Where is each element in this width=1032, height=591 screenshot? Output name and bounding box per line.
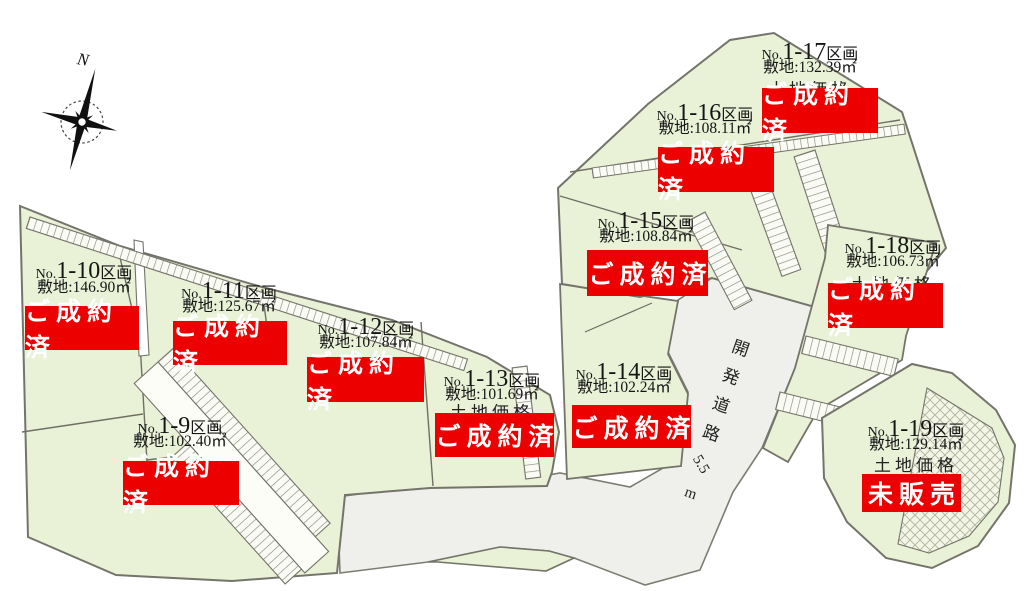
plot-1-13-area: 敷地:101.69㎡: [445, 387, 538, 403]
compass-rose: [29, 58, 130, 179]
plot-1-14-area: 敷地:102.24㎡: [577, 380, 670, 396]
land-plot-map: N 開発道路5.5m No.1-9区画敷地:102.40㎡ご成約済No.1-10…: [0, 0, 1032, 591]
plot-1-19-status-text: 未販売: [868, 475, 961, 511]
plot-1-17-status-banner: ご成約済: [762, 88, 878, 133]
plot-1-17-status-text: ご成約済: [762, 75, 884, 147]
plot-1-13-price-label: 土地価格: [450, 404, 534, 413]
plot-1-12-status-banner: ご成約済: [307, 357, 424, 402]
plot-1-15-area: 敷地:108.84㎡: [599, 229, 692, 245]
plot-1-9-status-banner: ご成約済: [123, 461, 239, 505]
plot-1-17-area: 敷地:132.39㎡: [763, 60, 856, 76]
plot-1-11-status-text: ご成約済: [173, 307, 293, 379]
plot-1-11-status-banner: ご成約済: [173, 321, 287, 365]
plot-1-9-status-text: ご成約済: [123, 447, 245, 519]
plot-1-10-status-text: ご成約済: [25, 292, 145, 364]
plot-1-18-status-banner: ご成約済: [828, 283, 943, 328]
plot-1-16-status-banner: ご成約済: [658, 147, 774, 192]
plot-1-15-status-text: ご成約済: [588, 255, 712, 291]
plot-1-15-status-banner: ご成約済: [587, 250, 708, 296]
plot-1-10-status-banner: ご成約済: [25, 306, 139, 350]
plot-1-12-status-text: ご成約済: [307, 344, 430, 416]
plot-1-19-area: 敷地:129.14㎡: [869, 437, 962, 453]
plot-1-13-status-banner: ご成約済: [435, 413, 554, 457]
plot-1-13-status-text: ご成約済: [435, 417, 559, 453]
plot-1-14-status-banner: ご成約済: [572, 405, 691, 448]
plot-1-14-status-text: ご成約済: [572, 409, 696, 445]
plot-1-18-area: 敷地:106.73㎡: [846, 254, 939, 270]
plot-1-19-price-label: 土地価格: [874, 457, 958, 473]
plot-1-18-status-text: ご成約済: [828, 270, 949, 342]
plot-1-19-status-banner: 未販売: [862, 474, 961, 512]
